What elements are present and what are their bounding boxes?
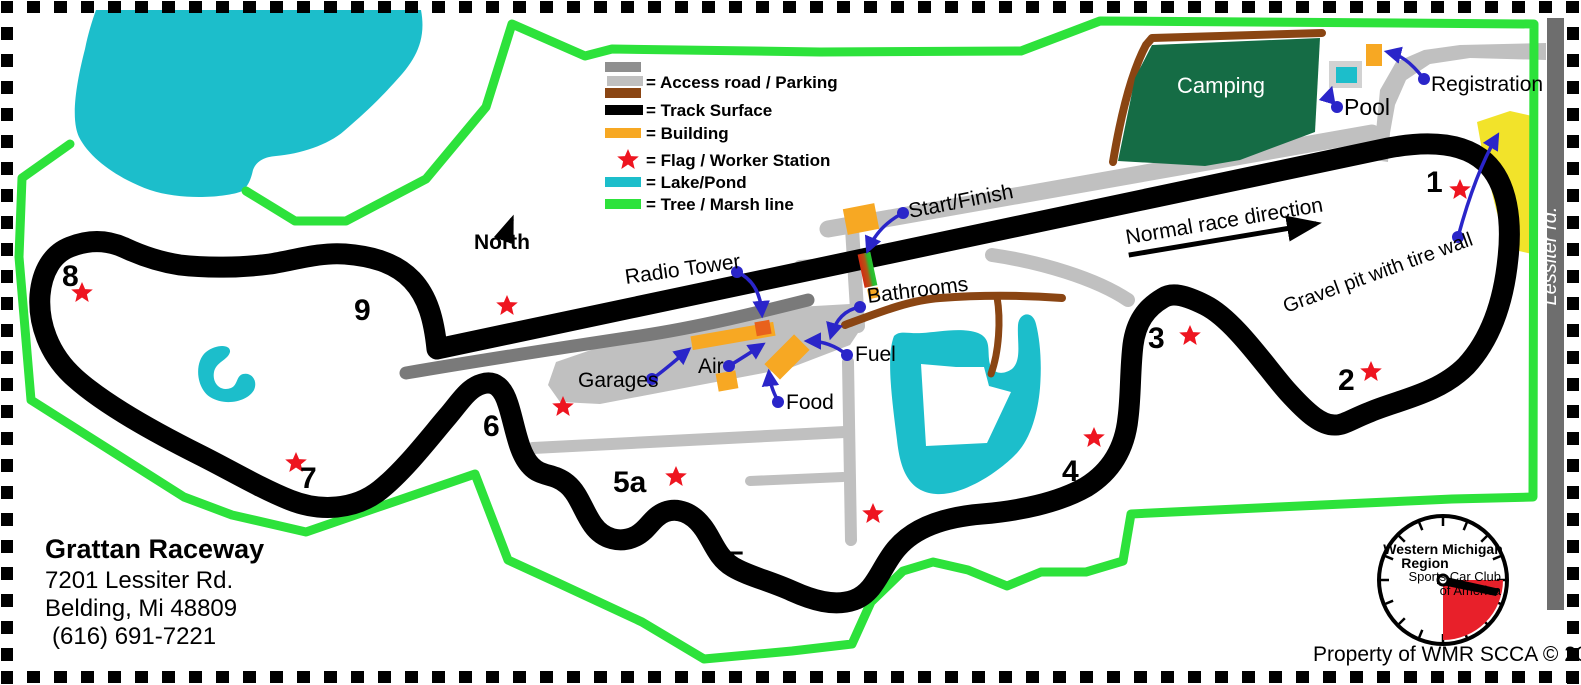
turn-6: 6	[483, 410, 500, 443]
property-notice: Property of WMR SCCA © 2011	[1313, 643, 1581, 666]
legend: = Access road / Parking = Track Surface …	[605, 62, 838, 214]
flag-station-turn4	[1083, 427, 1105, 447]
air-label: Air	[698, 355, 724, 378]
legend-swatch-road-light	[607, 76, 643, 86]
turn-1: 1	[1426, 166, 1443, 199]
turn-2: 2	[1338, 364, 1355, 397]
pool-label: Pool	[1344, 94, 1390, 120]
flag-station-access	[862, 503, 884, 523]
address-line2: Belding, Mi 48809	[45, 595, 237, 622]
address-block: Grattan Raceway 7201 Lessiter Rd. Beldin…	[45, 534, 264, 650]
registration-building	[1366, 44, 1382, 66]
turn-9: 9	[354, 294, 371, 327]
garages-label: Garages	[578, 369, 659, 392]
turn-8: 8	[62, 260, 79, 293]
gravel-pit-label: Gravel pit with tire wall	[1280, 229, 1476, 318]
legend-label-building: = Building	[646, 124, 729, 143]
flag-station-turn2	[1360, 361, 1382, 381]
turn-3: 3	[1148, 322, 1165, 355]
legend-swatch-tree	[605, 199, 641, 209]
pool-area	[1329, 61, 1362, 88]
radio-tower-building	[754, 320, 771, 336]
legend-swatch-road-medium	[605, 62, 641, 72]
fuel-label: Fuel	[855, 343, 896, 366]
camping-label: Camping	[1177, 73, 1265, 98]
turn-4: 4	[1062, 455, 1079, 488]
registration-label: Registration	[1431, 73, 1543, 96]
legend-label-tree: = Tree / Marsh line	[646, 195, 794, 214]
turn-5: 5	[728, 546, 745, 579]
turn-7: 7	[300, 462, 317, 495]
legend-swatch-road-brown	[605, 88, 641, 98]
address-line1: 7201 Lessiter Rd.	[45, 567, 233, 594]
logo-line4: of America	[1440, 583, 1502, 598]
turn-5a: 5a	[613, 466, 647, 499]
legend-swatch-star	[617, 149, 639, 169]
legend-swatch-lake	[605, 177, 641, 187]
legend-label-track: = Track Surface	[646, 101, 772, 120]
start-finish-label: Start/Finish	[907, 180, 1016, 223]
flag-station-straight	[496, 295, 518, 315]
legend-swatch-track	[605, 105, 643, 115]
northwest-lake	[75, 10, 423, 197]
flag-station-turn3	[1179, 325, 1201, 345]
raceway-name: Grattan Raceway	[45, 534, 264, 564]
legend-label-lake: = Lake/Pond	[646, 173, 747, 192]
legend-label-flag: = Flag / Worker Station	[646, 151, 830, 170]
logo-line3: Sports Car Club	[1409, 569, 1501, 584]
wmr-scca-logo: Western Michigan Region Sports Car Club …	[1379, 516, 1507, 644]
flag-station-turn5a	[665, 466, 687, 486]
start-finish-building	[843, 203, 879, 235]
food-label: Food	[786, 391, 834, 414]
infield-pond	[890, 314, 1041, 494]
lessiter-road-label: Lessiter rd.	[1539, 207, 1561, 306]
phone-number: (616) 691-7221	[52, 623, 216, 650]
lessiter-road	[1547, 18, 1564, 610]
track-map: 1 2 3 4 5 5a 6 7 8 9 Start/Finish Radio …	[0, 0, 1581, 685]
flag-station-turn1	[1449, 179, 1471, 199]
north-label: North	[474, 231, 530, 254]
north-compass: North	[474, 219, 530, 254]
small-pond	[198, 346, 255, 402]
grattan-raceway-map: 1 2 3 4 5 5a 6 7 8 9 Start/Finish Radio …	[0, 0, 1581, 685]
legend-swatch-building	[605, 128, 641, 138]
legend-label-access-road: = Access road / Parking	[646, 73, 838, 92]
